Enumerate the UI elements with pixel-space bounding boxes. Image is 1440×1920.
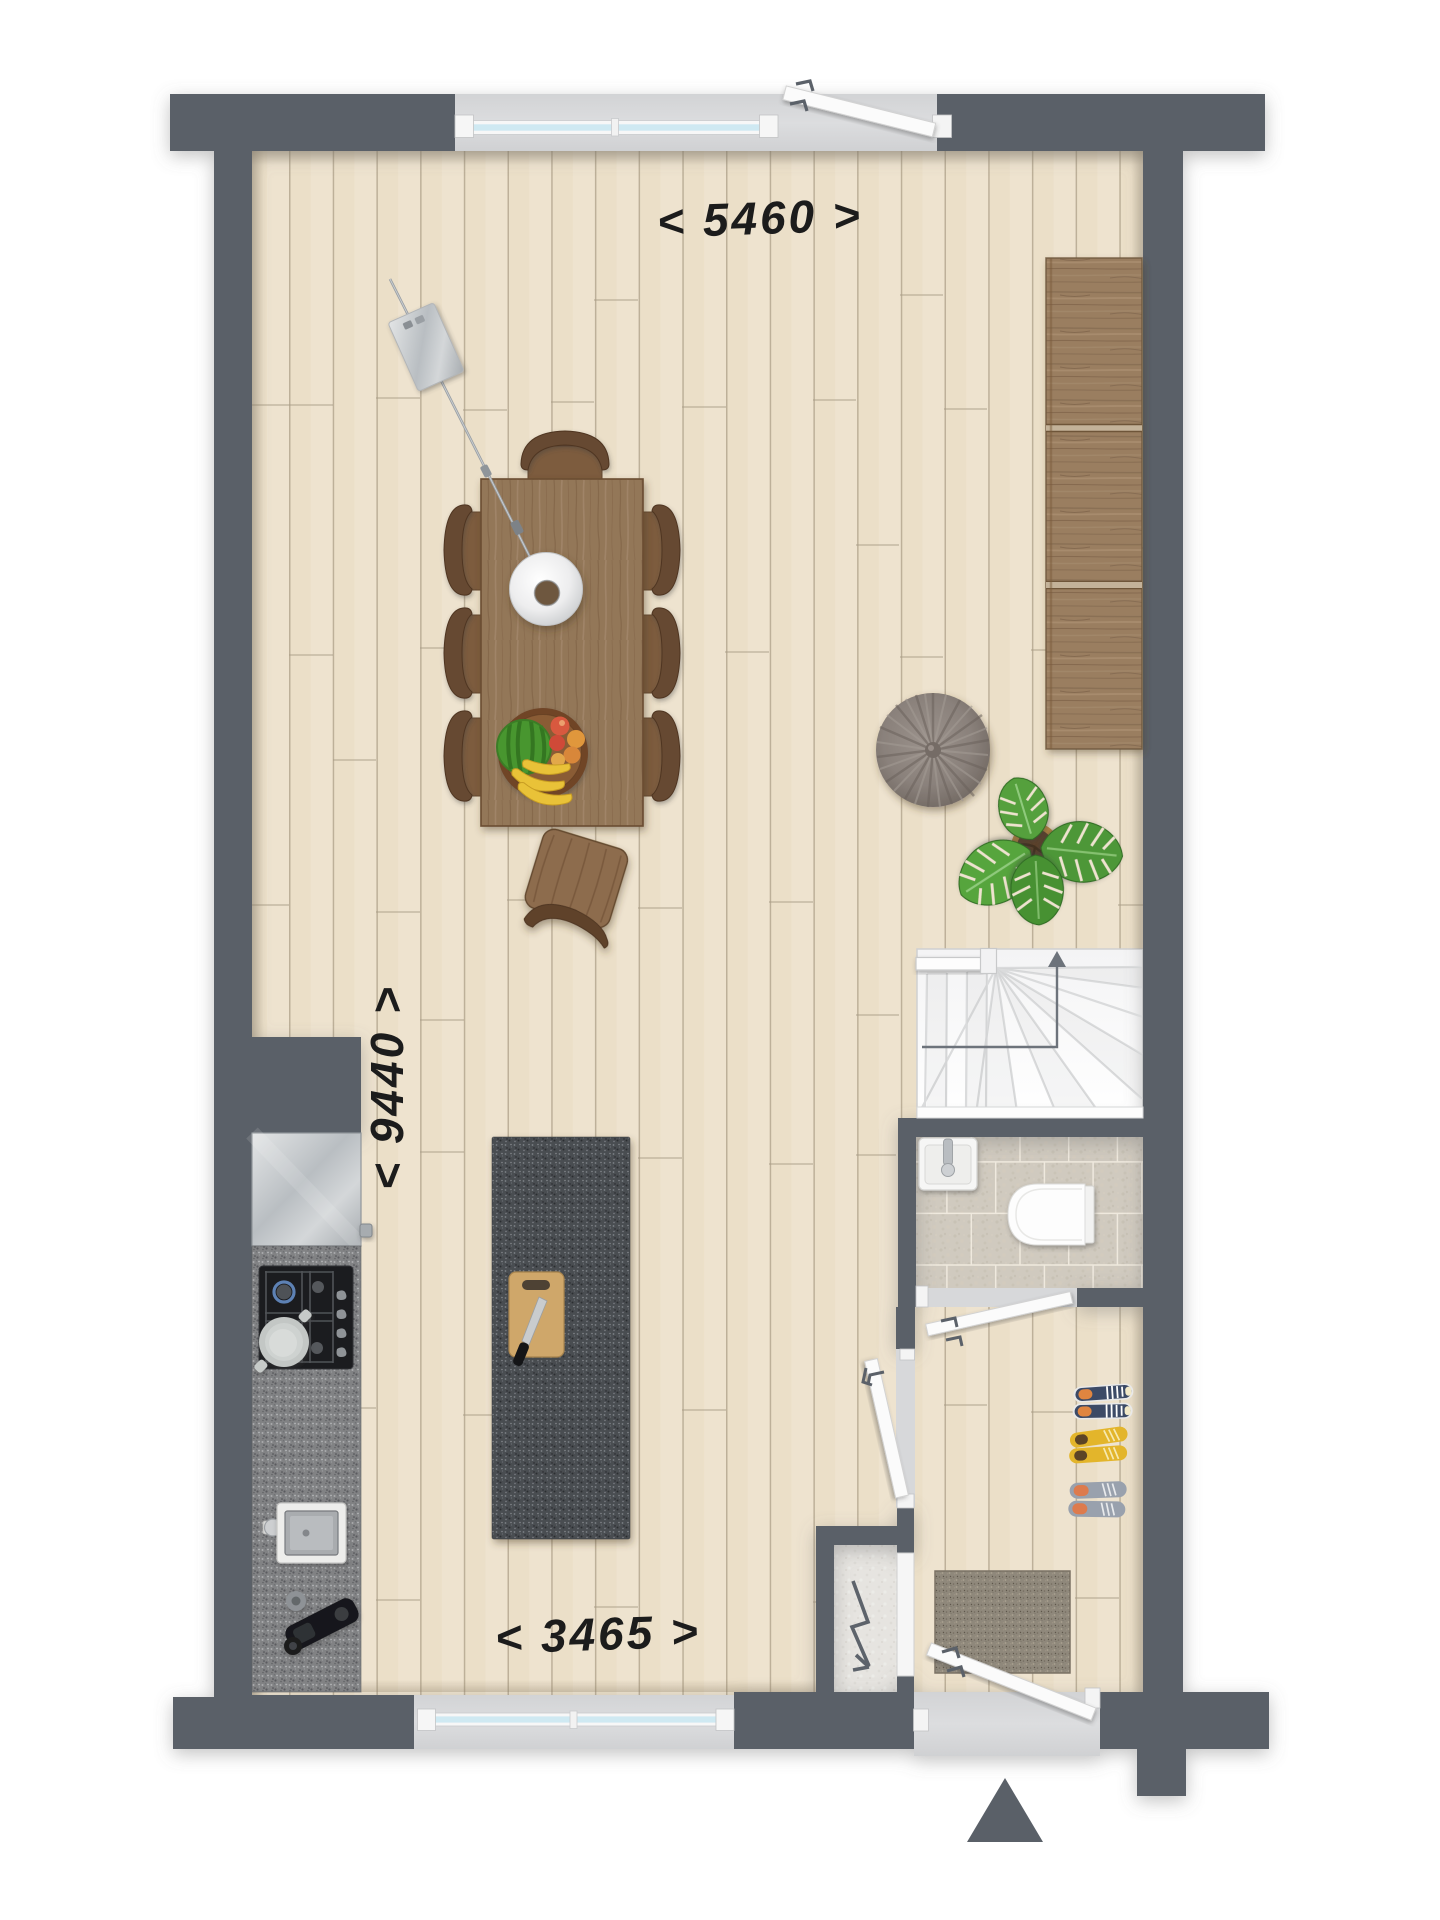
- svg-text:< 9440 >: < 9440 >: [361, 984, 413, 1190]
- svg-text:< 3465 >: < 3465 >: [494, 1604, 701, 1663]
- svg-text:< 5460 >: < 5460 >: [656, 188, 863, 247]
